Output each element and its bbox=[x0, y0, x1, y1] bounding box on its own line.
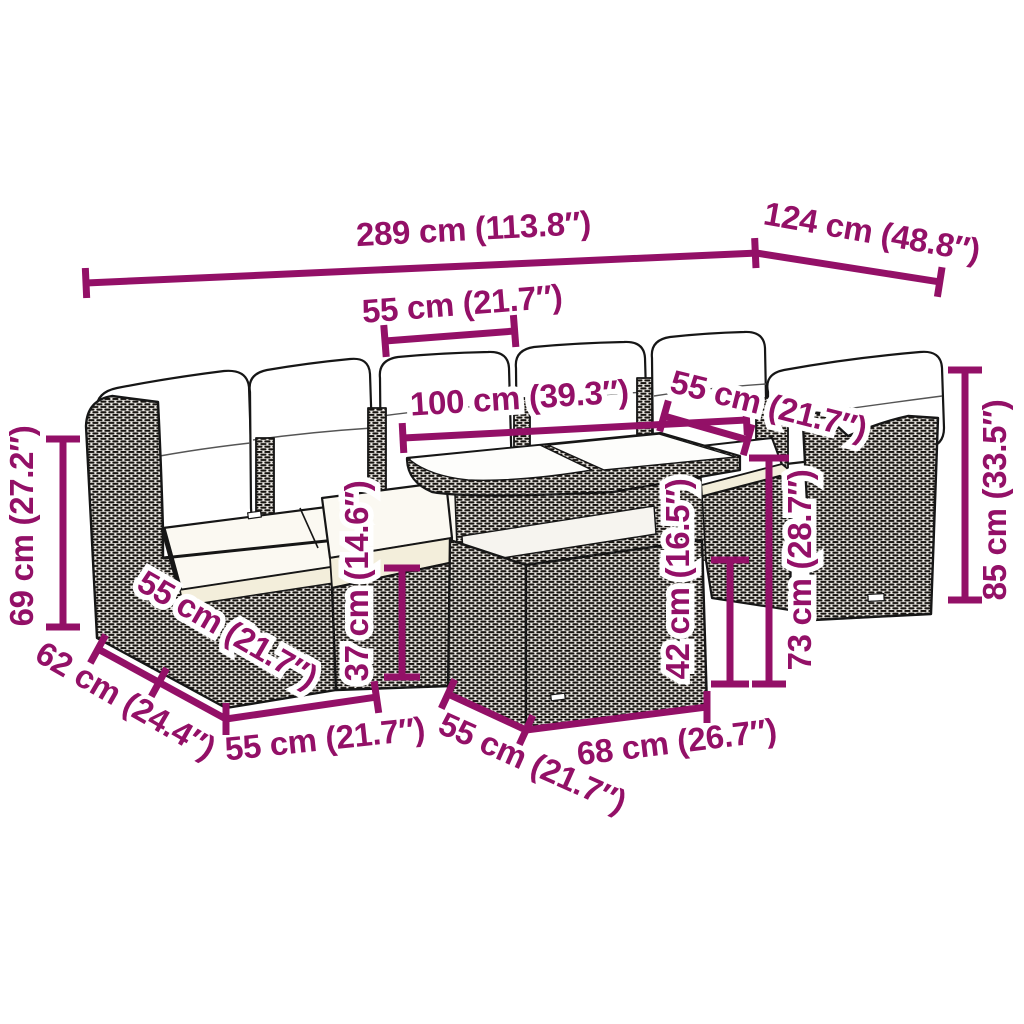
svg-text:289 cm (113.8″): 289 cm (113.8″) bbox=[355, 204, 592, 253]
svg-text:42 cm (16.5″): 42 cm (16.5″) bbox=[659, 479, 696, 680]
svg-text:85 cm (33.5″): 85 cm (33.5″) bbox=[976, 400, 1013, 601]
svg-text:55 cm (21.7″): 55 cm (21.7″) bbox=[361, 277, 564, 330]
svg-text:69 cm (27.2″): 69 cm (27.2″) bbox=[3, 426, 40, 627]
svg-text:37 cm (14.6″): 37 cm (14.6″) bbox=[338, 481, 375, 682]
svg-text:73 cm (28.7″): 73 cm (28.7″) bbox=[781, 470, 818, 671]
